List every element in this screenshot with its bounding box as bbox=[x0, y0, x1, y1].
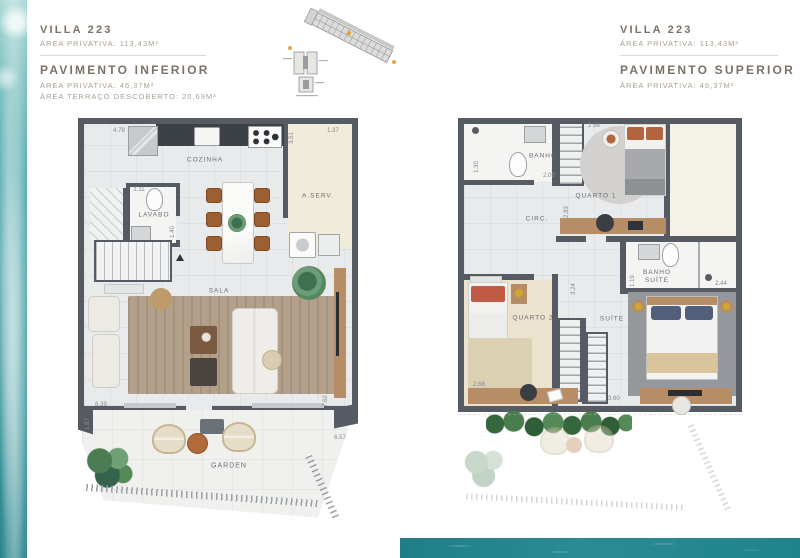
villa-title: VILLA 223 bbox=[620, 24, 800, 36]
floor-area: ÁREA PRIVATIVA: 46,37M² bbox=[620, 81, 800, 90]
door-opening bbox=[186, 400, 212, 410]
dimension: 3.51 bbox=[289, 132, 295, 144]
dimension: 2.09 bbox=[543, 173, 555, 179]
dining-chair bbox=[206, 236, 222, 251]
floor-title-inferior: PAVIMENTO INFERIOR bbox=[40, 63, 220, 77]
wall-segment bbox=[582, 318, 586, 404]
page-canvas: VILLA 223 ÁREA PRIVATIVA: 113,43M² PAVIM… bbox=[0, 0, 800, 558]
wall-segment bbox=[556, 236, 586, 242]
pool-water-texture-left bbox=[0, 0, 27, 558]
room-label-aserv: A.SERV. bbox=[302, 193, 334, 200]
tv bbox=[336, 292, 339, 356]
wall-segment bbox=[620, 242, 626, 292]
kitchen-sink bbox=[194, 127, 220, 146]
dimension: 2.68 bbox=[473, 382, 485, 388]
ghost-fence-hatching bbox=[466, 493, 686, 511]
tv bbox=[668, 390, 702, 396]
dimension: 1.19 bbox=[630, 275, 636, 287]
pool-water-texture-bottom bbox=[400, 538, 800, 558]
coffee-table bbox=[190, 326, 217, 354]
dining-chair bbox=[206, 188, 222, 203]
note-label bbox=[104, 284, 144, 294]
pillow bbox=[685, 306, 713, 320]
door-opening bbox=[176, 216, 180, 240]
blanket bbox=[625, 149, 665, 181]
dimension: 7.62 bbox=[323, 395, 329, 407]
pouf bbox=[150, 288, 172, 310]
room-label-lavabo: LAVABO bbox=[138, 212, 169, 219]
room-label-cozinha: COZINHA bbox=[187, 157, 223, 164]
room-label-quarto2: QUARTO 2 bbox=[513, 315, 554, 322]
nightstand bbox=[632, 300, 645, 313]
dimension: 1.87 bbox=[85, 418, 91, 430]
dimension: 2.44 bbox=[715, 281, 727, 287]
room-label-suite: SUÍTE bbox=[600, 316, 624, 323]
room-label-quarto1: QUARTO 1 bbox=[576, 193, 617, 200]
room-label-sala: SALA bbox=[209, 288, 230, 295]
villa-area: ÁREA PRIVATIVA: 113,43M² bbox=[40, 39, 220, 48]
ghost-lounge-chair bbox=[584, 425, 614, 453]
toilet bbox=[146, 188, 163, 211]
open-terrace-void bbox=[670, 124, 736, 238]
ghost-terrace-below bbox=[458, 414, 742, 521]
bathroom-sink bbox=[638, 244, 660, 260]
stairs-flight bbox=[586, 332, 608, 404]
bathroom-sink bbox=[524, 126, 546, 143]
dimension: 4.78 bbox=[113, 128, 125, 134]
site-building-slab bbox=[304, 6, 395, 63]
foot-throw bbox=[625, 179, 665, 195]
pillow bbox=[651, 306, 681, 320]
dining-chair bbox=[206, 212, 222, 227]
nightstand bbox=[720, 300, 733, 313]
dimension: 6.57 bbox=[334, 435, 346, 441]
terrace-area: ÁREA TERRAÇO DESCOBERTO: 20,69M² bbox=[40, 92, 220, 101]
site-building-blocks bbox=[294, 52, 317, 92]
site-sun-marker bbox=[288, 46, 292, 50]
villa-area: ÁREA PRIVATIVA: 113,43M² bbox=[620, 39, 800, 48]
service-area-floor bbox=[287, 124, 352, 248]
ghost-lounge-chair bbox=[540, 427, 570, 455]
stairs-under-hatch bbox=[90, 188, 126, 242]
stairs-flight bbox=[94, 240, 172, 282]
dimension: 1.11 bbox=[133, 187, 144, 193]
pouf bbox=[262, 350, 282, 370]
room-label-banho-suite: BANHO SUÍTE bbox=[637, 269, 677, 285]
chaise bbox=[92, 334, 120, 388]
room-label-banho: BANHO bbox=[529, 153, 557, 160]
washing-machine bbox=[289, 232, 316, 258]
divider bbox=[620, 55, 778, 56]
access-arrow-icon bbox=[176, 254, 184, 261]
garden-table bbox=[200, 419, 224, 434]
headboard bbox=[647, 297, 717, 305]
floor-title-superior: PAVIMENTO SUPERIOR bbox=[620, 63, 800, 77]
ghost-side-table bbox=[566, 437, 582, 453]
nightstand bbox=[511, 284, 527, 304]
dimension: 2.83 bbox=[564, 206, 570, 218]
shower-head-icon bbox=[705, 274, 712, 281]
dimension: 3.60 bbox=[608, 396, 620, 402]
dimension: 6.39 bbox=[95, 402, 107, 408]
lounge-chair bbox=[222, 422, 256, 452]
coffee-table bbox=[190, 358, 217, 386]
room-label-circ: CIRC. bbox=[526, 216, 549, 223]
shower-glass bbox=[698, 242, 700, 288]
garden-side-table bbox=[187, 433, 208, 454]
room-label-garden: GARDEN bbox=[211, 463, 247, 470]
refrigerator bbox=[128, 126, 158, 156]
window bbox=[124, 403, 176, 408]
desk-chair bbox=[520, 384, 537, 401]
bedroom-chair bbox=[602, 130, 620, 148]
toilet bbox=[509, 152, 527, 177]
pillow bbox=[627, 127, 644, 140]
header-inferior: VILLA 223 ÁREA PRIVATIVA: 113,43M² PAVIM… bbox=[40, 24, 220, 103]
bed-quarto1 bbox=[624, 124, 666, 196]
dimension: 1.40 bbox=[170, 226, 176, 238]
chair bbox=[672, 396, 691, 415]
divider bbox=[40, 55, 206, 56]
shower-head-icon bbox=[472, 127, 479, 134]
laptop bbox=[628, 221, 643, 230]
dimension: 2.58 bbox=[588, 123, 600, 129]
lounge-chair bbox=[152, 424, 186, 454]
pillow bbox=[471, 286, 505, 302]
header-superior: VILLA 223 ÁREA PRIVATIVA: 113,43M² PAVIM… bbox=[620, 24, 800, 92]
ghost-fence-hatching bbox=[688, 424, 731, 510]
site-key-plan bbox=[282, 6, 400, 98]
window bbox=[252, 403, 324, 408]
stove-cooktop bbox=[248, 126, 282, 148]
wall-segment bbox=[464, 180, 534, 185]
table-plant bbox=[228, 214, 246, 232]
dining-chair bbox=[254, 236, 270, 251]
bed-suite bbox=[646, 296, 718, 380]
laundry-tank bbox=[318, 234, 340, 256]
dimension: 1.37 bbox=[327, 128, 339, 134]
floor-plant bbox=[292, 266, 326, 300]
desk-chair bbox=[596, 214, 614, 232]
pillow bbox=[646, 127, 663, 140]
ghost-plant bbox=[462, 447, 510, 491]
site-sun-marker bbox=[392, 60, 396, 64]
floor-area: ÁREA PRIVATIVA: 46,37M² bbox=[40, 81, 220, 90]
stairs-flight bbox=[558, 122, 584, 186]
dimension: 1.30 bbox=[474, 161, 480, 173]
parapet-wall bbox=[334, 403, 358, 428]
foot-throw bbox=[647, 353, 717, 373]
dining-chair bbox=[254, 212, 270, 227]
toilet bbox=[662, 243, 679, 267]
dimension: 3.24 bbox=[571, 283, 577, 295]
armchair bbox=[88, 296, 120, 332]
villa-title: VILLA 223 bbox=[40, 24, 220, 36]
dining-chair bbox=[254, 188, 270, 203]
